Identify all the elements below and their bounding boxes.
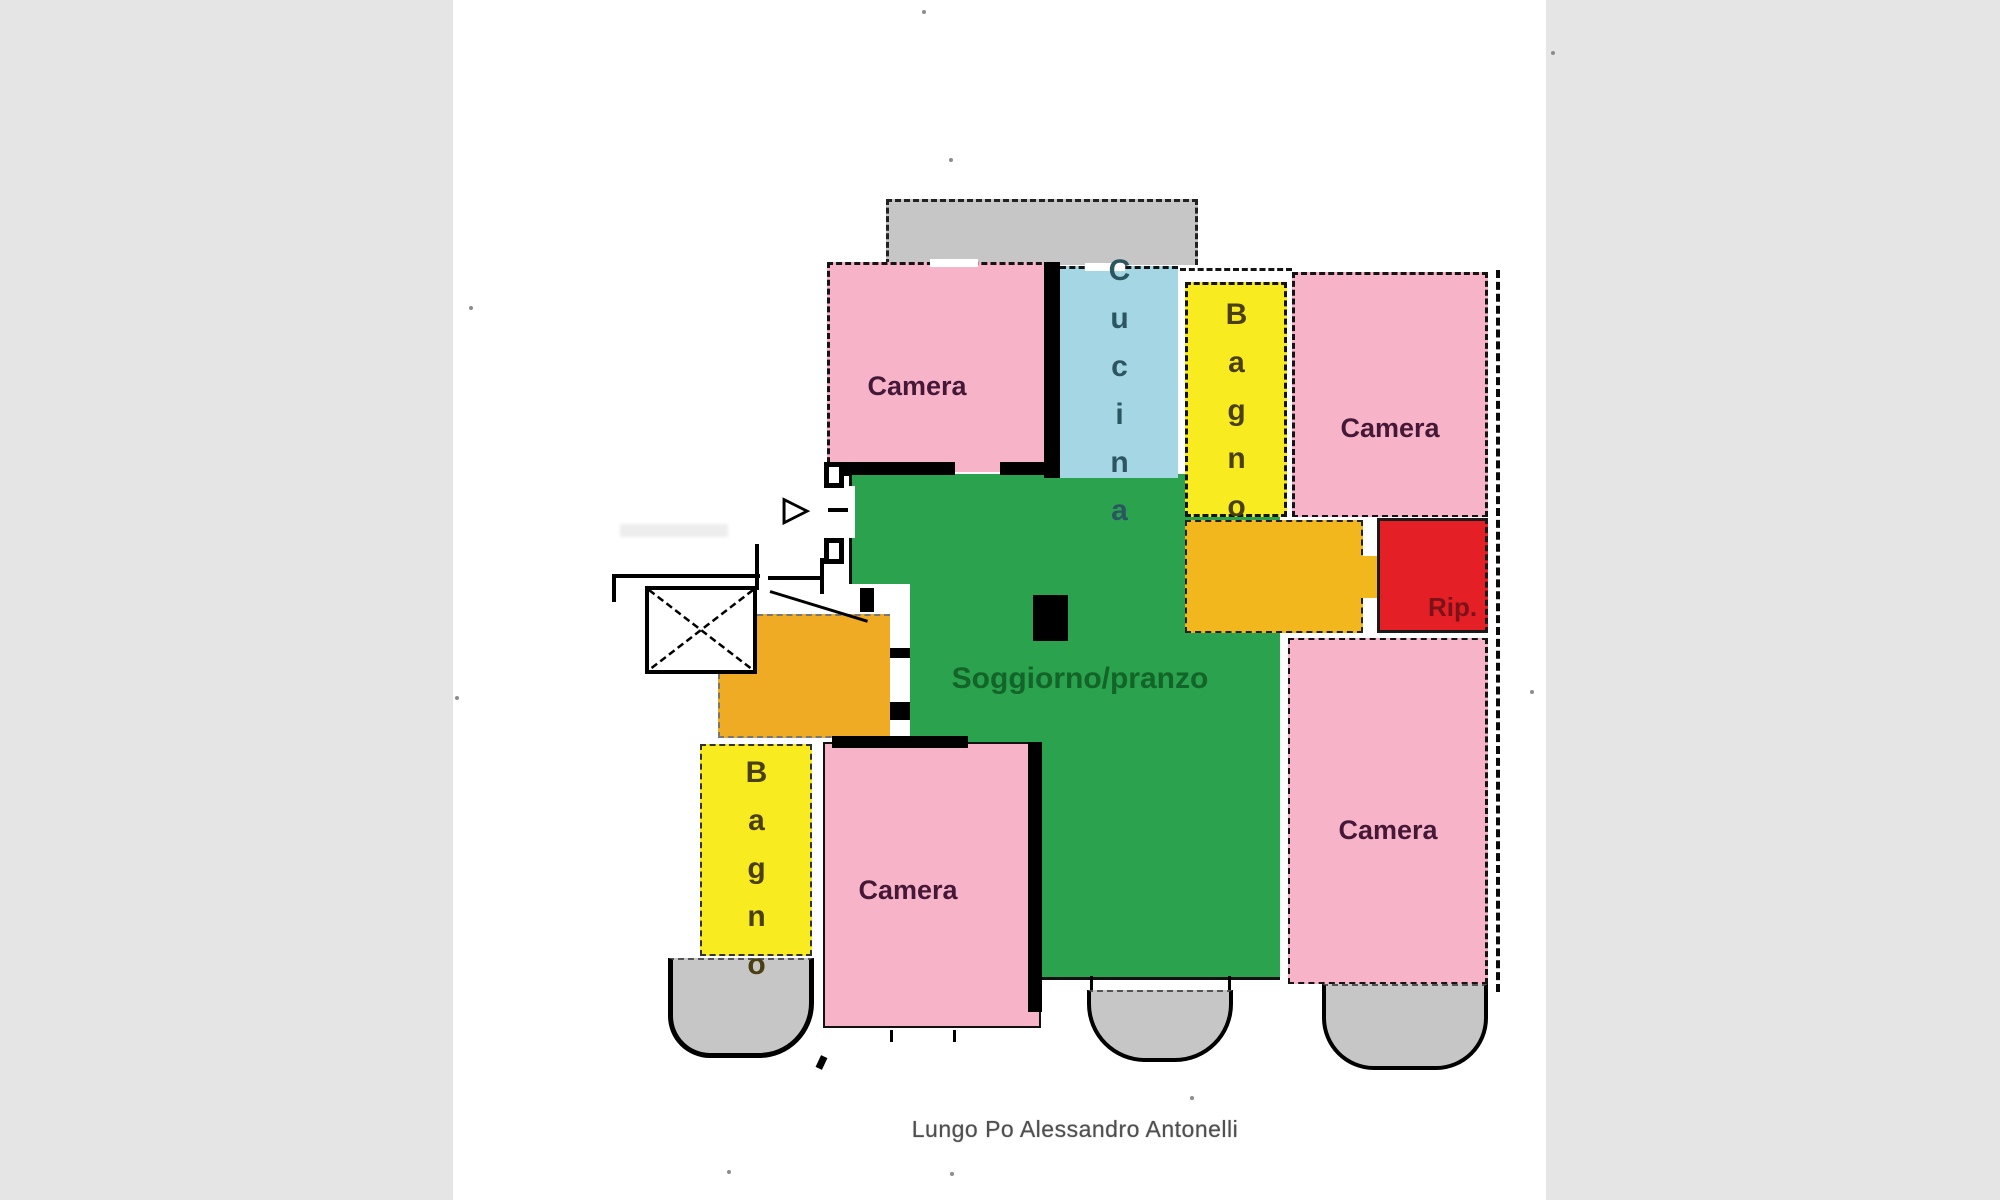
floorplan-page: ▷ Camera Cucina Bagno Camera Rip. Soggio…	[0, 0, 2000, 1200]
side-panel-right	[1546, 0, 2000, 1200]
entry-door-gap	[843, 486, 855, 538]
elevator-shaft	[645, 586, 757, 674]
ripostiglio-label: Rip.	[1397, 592, 1508, 623]
elevator-x-icon	[649, 590, 753, 670]
noise-dot	[455, 696, 459, 700]
camera-bottom-left-label: Camera	[823, 876, 993, 906]
column-pillar	[1033, 595, 1068, 641]
room-camera-top-left	[827, 262, 1060, 472]
window-tick	[890, 1030, 893, 1042]
noise-dot	[469, 306, 473, 310]
wall-camera-bl-top	[832, 736, 968, 748]
window-gap-camera-tl	[930, 259, 978, 267]
window-tick	[1090, 976, 1093, 990]
hallway-right	[1185, 520, 1363, 633]
window-tick	[1228, 976, 1231, 990]
camera-top-left-label: Camera	[827, 372, 1007, 402]
noise-dot	[949, 158, 953, 162]
cucina-label: Cucina	[1060, 254, 1178, 524]
outer-wall-right	[1496, 270, 1500, 992]
noise-dot	[950, 1172, 954, 1176]
camera-top-right-label: Camera	[1292, 414, 1488, 444]
door-jamb-top	[824, 462, 844, 488]
door-jamb-bottom	[824, 538, 844, 564]
landing-stub	[755, 544, 759, 590]
camera-right-label: Camera	[1288, 816, 1488, 846]
noise-dot	[1190, 1096, 1194, 1100]
window-tick	[953, 1030, 956, 1042]
landing-bracket-top	[768, 576, 824, 580]
plan-caption: Lungo Po Alessandro Antonelli	[850, 1116, 1300, 1143]
wall-camera-tl-bottom-a	[840, 462, 955, 475]
entry-arrow-glyph: ▷	[783, 490, 809, 528]
noise-dot	[922, 10, 926, 14]
room-camera-right	[1288, 638, 1488, 984]
elevator-landing-wall	[612, 574, 760, 578]
landing-bracket-vert	[820, 558, 824, 594]
wall-camera-bl-right	[1028, 742, 1042, 1012]
soggiorno-label: Soggiorno/pranzo	[880, 662, 1280, 696]
noise-dot	[1551, 51, 1555, 55]
wall-camera-tl-bottom-b	[1000, 462, 1044, 475]
wall-notch-stub	[860, 588, 874, 612]
elevator-landing-tick	[612, 574, 616, 602]
outer-wall-top-right-seg	[1180, 268, 1292, 271]
artifact-smudge	[620, 524, 728, 537]
bagno-left-label: Bagno	[700, 756, 812, 986]
entry-arrow-icon: ▷	[783, 492, 809, 526]
bagno-top-label: Bagno	[1185, 298, 1287, 528]
balcony-bottom-right	[1322, 984, 1488, 1070]
side-panel-left	[0, 0, 453, 1200]
room-camera-top-right	[1292, 272, 1488, 517]
noise-dot	[727, 1170, 731, 1174]
entry-arrow-dash	[828, 508, 848, 512]
noise-dot	[1530, 690, 1534, 694]
wall-camera-tl-right	[1044, 262, 1060, 478]
